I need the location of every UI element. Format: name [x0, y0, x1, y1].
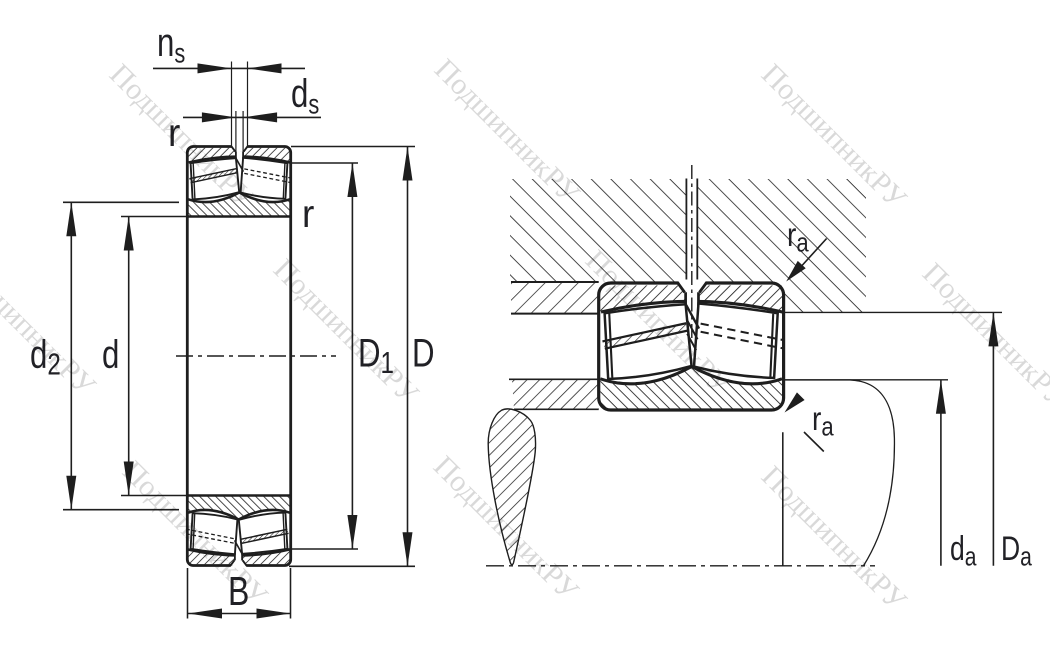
svg-text:d: d	[102, 332, 119, 377]
svg-text:D: D	[412, 331, 435, 376]
svg-text:r: r	[302, 193, 315, 236]
